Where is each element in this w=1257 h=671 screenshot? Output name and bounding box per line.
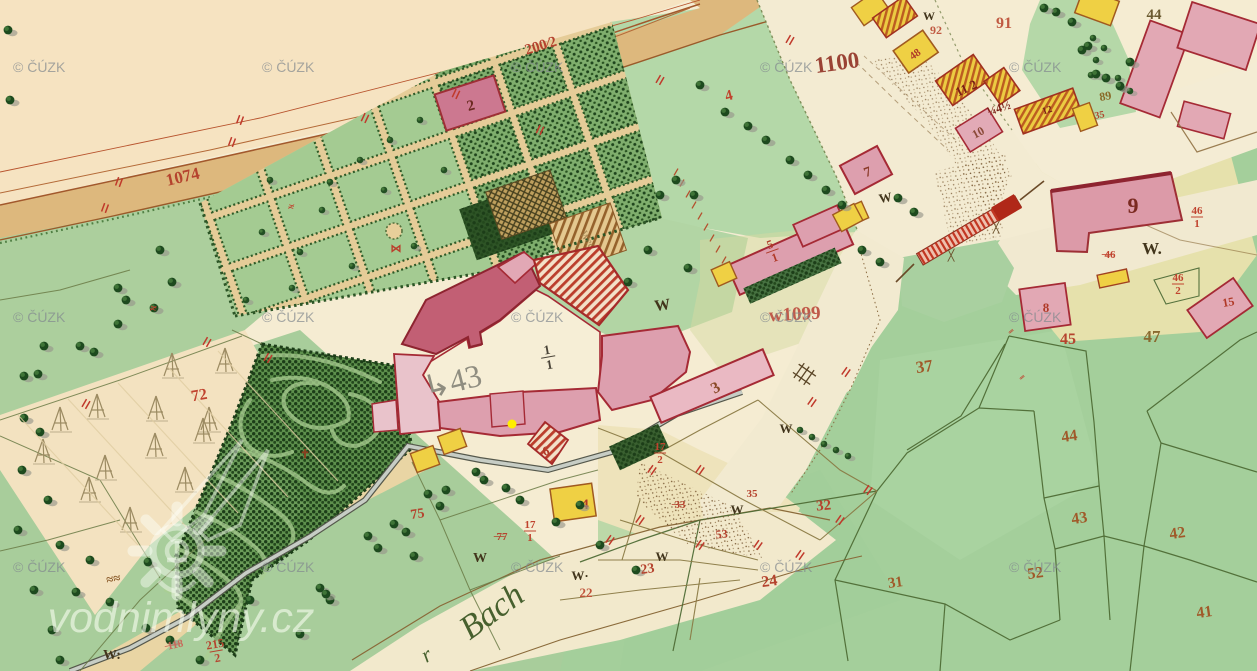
svg-text:53: 53: [715, 527, 728, 542]
svg-text:W: W: [780, 421, 793, 436]
svg-text:32: 32: [815, 497, 831, 514]
svg-text:46: 46: [1192, 205, 1204, 217]
svg-text:̶4̶6: ̶4̶6: [1102, 249, 1117, 261]
svg-text:2: 2: [1175, 285, 1181, 297]
svg-text:92: 92: [930, 23, 942, 37]
svg-text:© ČÚZK: © ČÚZK: [1009, 59, 1062, 75]
svg-text:15: 15: [1221, 294, 1235, 310]
svg-text:W: W: [653, 296, 671, 315]
svg-text:1: 1: [527, 532, 533, 544]
svg-text:W.: W.: [1142, 239, 1162, 258]
svg-text:35: 35: [747, 488, 759, 500]
svg-text:© ČÚZK: © ČÚZK: [511, 59, 564, 75]
svg-text:46: 46: [1173, 272, 1185, 284]
svg-text:22: 22: [580, 585, 593, 600]
svg-text:W: W: [656, 549, 669, 564]
svg-text:W:: W:: [103, 648, 121, 663]
svg-text:44: 44: [1147, 7, 1163, 23]
svg-text:2: 2: [657, 454, 663, 466]
svg-text:31: 31: [887, 574, 904, 592]
svg-text:42: 42: [1168, 524, 1186, 543]
svg-text:W: W: [878, 189, 893, 206]
svg-text:⋈: ⋈: [391, 243, 402, 255]
svg-text:89: 89: [1098, 88, 1112, 104]
svg-text:47: 47: [1144, 327, 1162, 346]
svg-text:© ČÚZK: © ČÚZK: [262, 559, 315, 575]
svg-text:91: 91: [996, 15, 1012, 32]
svg-text:© ČÚZK: © ČÚZK: [760, 309, 813, 325]
svg-text:9: 9: [1128, 193, 1139, 218]
svg-text:vodnimlyny.cz: vodnimlyny.cz: [48, 594, 315, 642]
svg-text:43: 43: [1070, 509, 1088, 528]
svg-text:̶3̶3: ̶3̶3: [672, 499, 687, 511]
svg-text:75: 75: [410, 506, 426, 523]
svg-text:17: 17: [655, 441, 667, 453]
svg-text:© ČÚZK: © ČÚZK: [13, 559, 66, 575]
svg-text:© ČÚZK: © ČÚZK: [1009, 559, 1062, 575]
svg-text:© ČÚZK: © ČÚZK: [262, 309, 315, 325]
svg-text:45: 45: [1060, 331, 1076, 348]
svg-text:© ČÚZK: © ČÚZK: [511, 559, 564, 575]
svg-text:17: 17: [525, 519, 537, 531]
svg-text:© ČÚZK: © ČÚZK: [13, 309, 66, 325]
svg-text:23: 23: [640, 561, 656, 578]
svg-text:© ČÚZK: © ČÚZK: [262, 59, 315, 75]
svg-text:© ČÚZK: © ČÚZK: [760, 559, 813, 575]
svg-text:© ČÚZK: © ČÚZK: [1009, 309, 1062, 325]
svg-text:̶7̶7: ̶7̶7: [494, 531, 509, 543]
svg-text:37: 37: [914, 356, 934, 377]
svg-text:44: 44: [1060, 427, 1078, 446]
svg-text:35: 35: [1094, 109, 1106, 122]
svg-text:© ČÚZK: © ČÚZK: [760, 59, 813, 75]
svg-text:W: W: [923, 9, 935, 23]
svg-text:© ČÚZK: © ČÚZK: [13, 59, 66, 75]
svg-text:© ČÚZK: © ČÚZK: [511, 309, 564, 325]
svg-text:W: W: [731, 502, 744, 517]
svg-text:W·: W·: [571, 568, 588, 583]
svg-text:1: 1: [1194, 218, 1200, 230]
svg-text:W: W: [473, 551, 487, 566]
svg-text:≈≈: ≈≈: [105, 570, 122, 587]
svg-text:41: 41: [1195, 603, 1213, 622]
svg-text:72: 72: [190, 386, 209, 406]
